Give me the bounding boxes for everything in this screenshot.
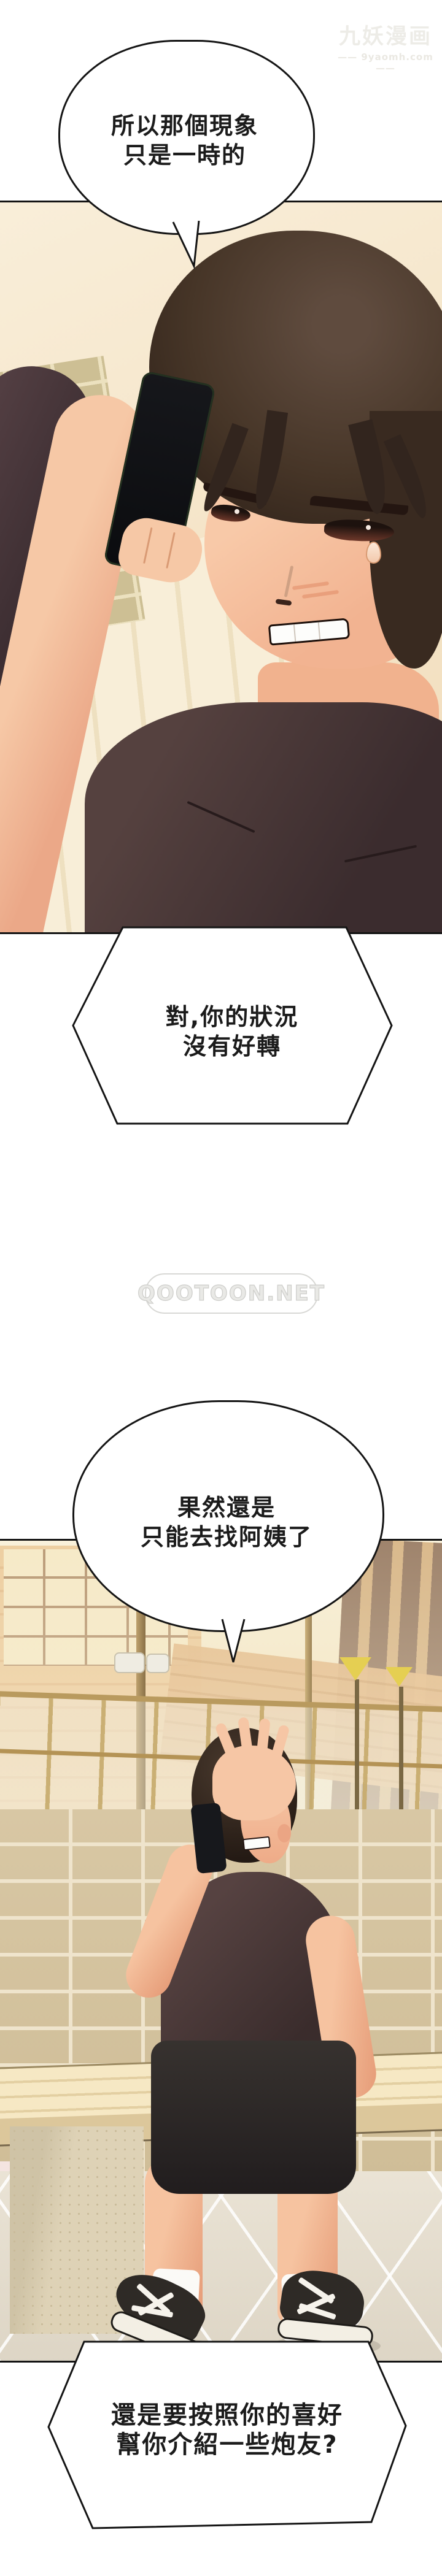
publisher-watermark: QOOTOON.NET [145,1273,318,1314]
speech-bubble-1-line-1: 所以那個現象 [58,111,311,140]
street-lamp-cone [339,1657,371,1681]
man-ear [277,1824,291,1842]
man-shorts [151,2041,356,2194]
facepalm-hand [212,1746,296,1820]
phone-voice-bubble-4-line-1: 還是要按照你的喜好 [55,2401,399,2430]
wall-sign [146,1654,169,1673]
phone-voice-bubble-4-line-2: 幫你介紹一些炮友? [55,2430,399,2459]
speech-bubble-3-tail [216,1617,250,1666]
wall-sign [114,1652,145,1673]
phone-voice-bubble-2-line-2: 沒有好轉 [72,1032,392,1061]
speech-bubble-3-line-1: 果然還是 [72,1493,381,1522]
street-lamp-pole [399,1687,403,1809]
phone-voice-bubble-2-line-1: 對,你的狀況 [72,1002,392,1032]
site-watermark: 九妖漫画 —— 9yaomh.com —— [330,25,441,74]
site-watermark-logo: 九妖漫画 [330,25,441,49]
speech-bubble-1-tail [165,220,209,271]
sweat-drop [366,542,381,564]
webtoon-page: 九妖漫画 —— 9yaomh.com —— [0,0,442,2576]
street-lamp-cone [386,1667,413,1687]
speech-bubble-1-line-2: 只是一時的 [58,140,311,170]
left-eye-glint [235,509,239,514]
site-watermark-domain: —— 9yaomh.com —— [330,52,441,74]
publisher-watermark-text: QOOTOON.NET [138,1281,325,1306]
man-shirt [85,702,442,934]
right-eye-glint [366,525,371,530]
street-lamp-pole [355,1679,359,1817]
speech-bubble-3-line-2: 只能去找阿姨了 [72,1522,381,1552]
panel-closeup-angry-man-on-phone [0,201,442,934]
